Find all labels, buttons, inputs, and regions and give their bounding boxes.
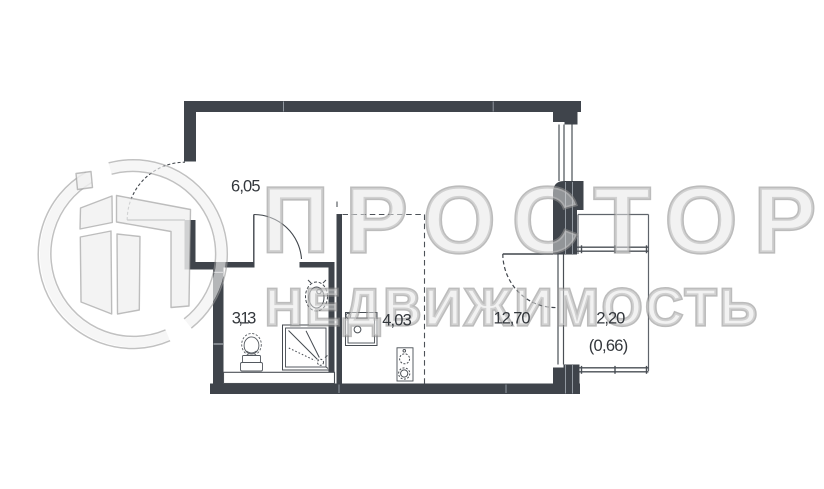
svg-text:12,70: 12,70 <box>494 310 531 328</box>
svg-text:4,03: 4,03 <box>382 312 412 330</box>
svg-text:6,05: 6,05 <box>231 178 260 196</box>
svg-text:2,20: 2,20 <box>596 310 625 328</box>
svg-text:НЕДВИЖИМОСТЬ: НЕДВИЖИМОСТЬ <box>265 279 757 337</box>
svg-text:(0,66): (0,66) <box>589 337 629 355</box>
svg-text:ПРОСТОР: ПРОСТОР <box>262 168 816 272</box>
svg-text:3,13: 3,13 <box>232 310 257 328</box>
